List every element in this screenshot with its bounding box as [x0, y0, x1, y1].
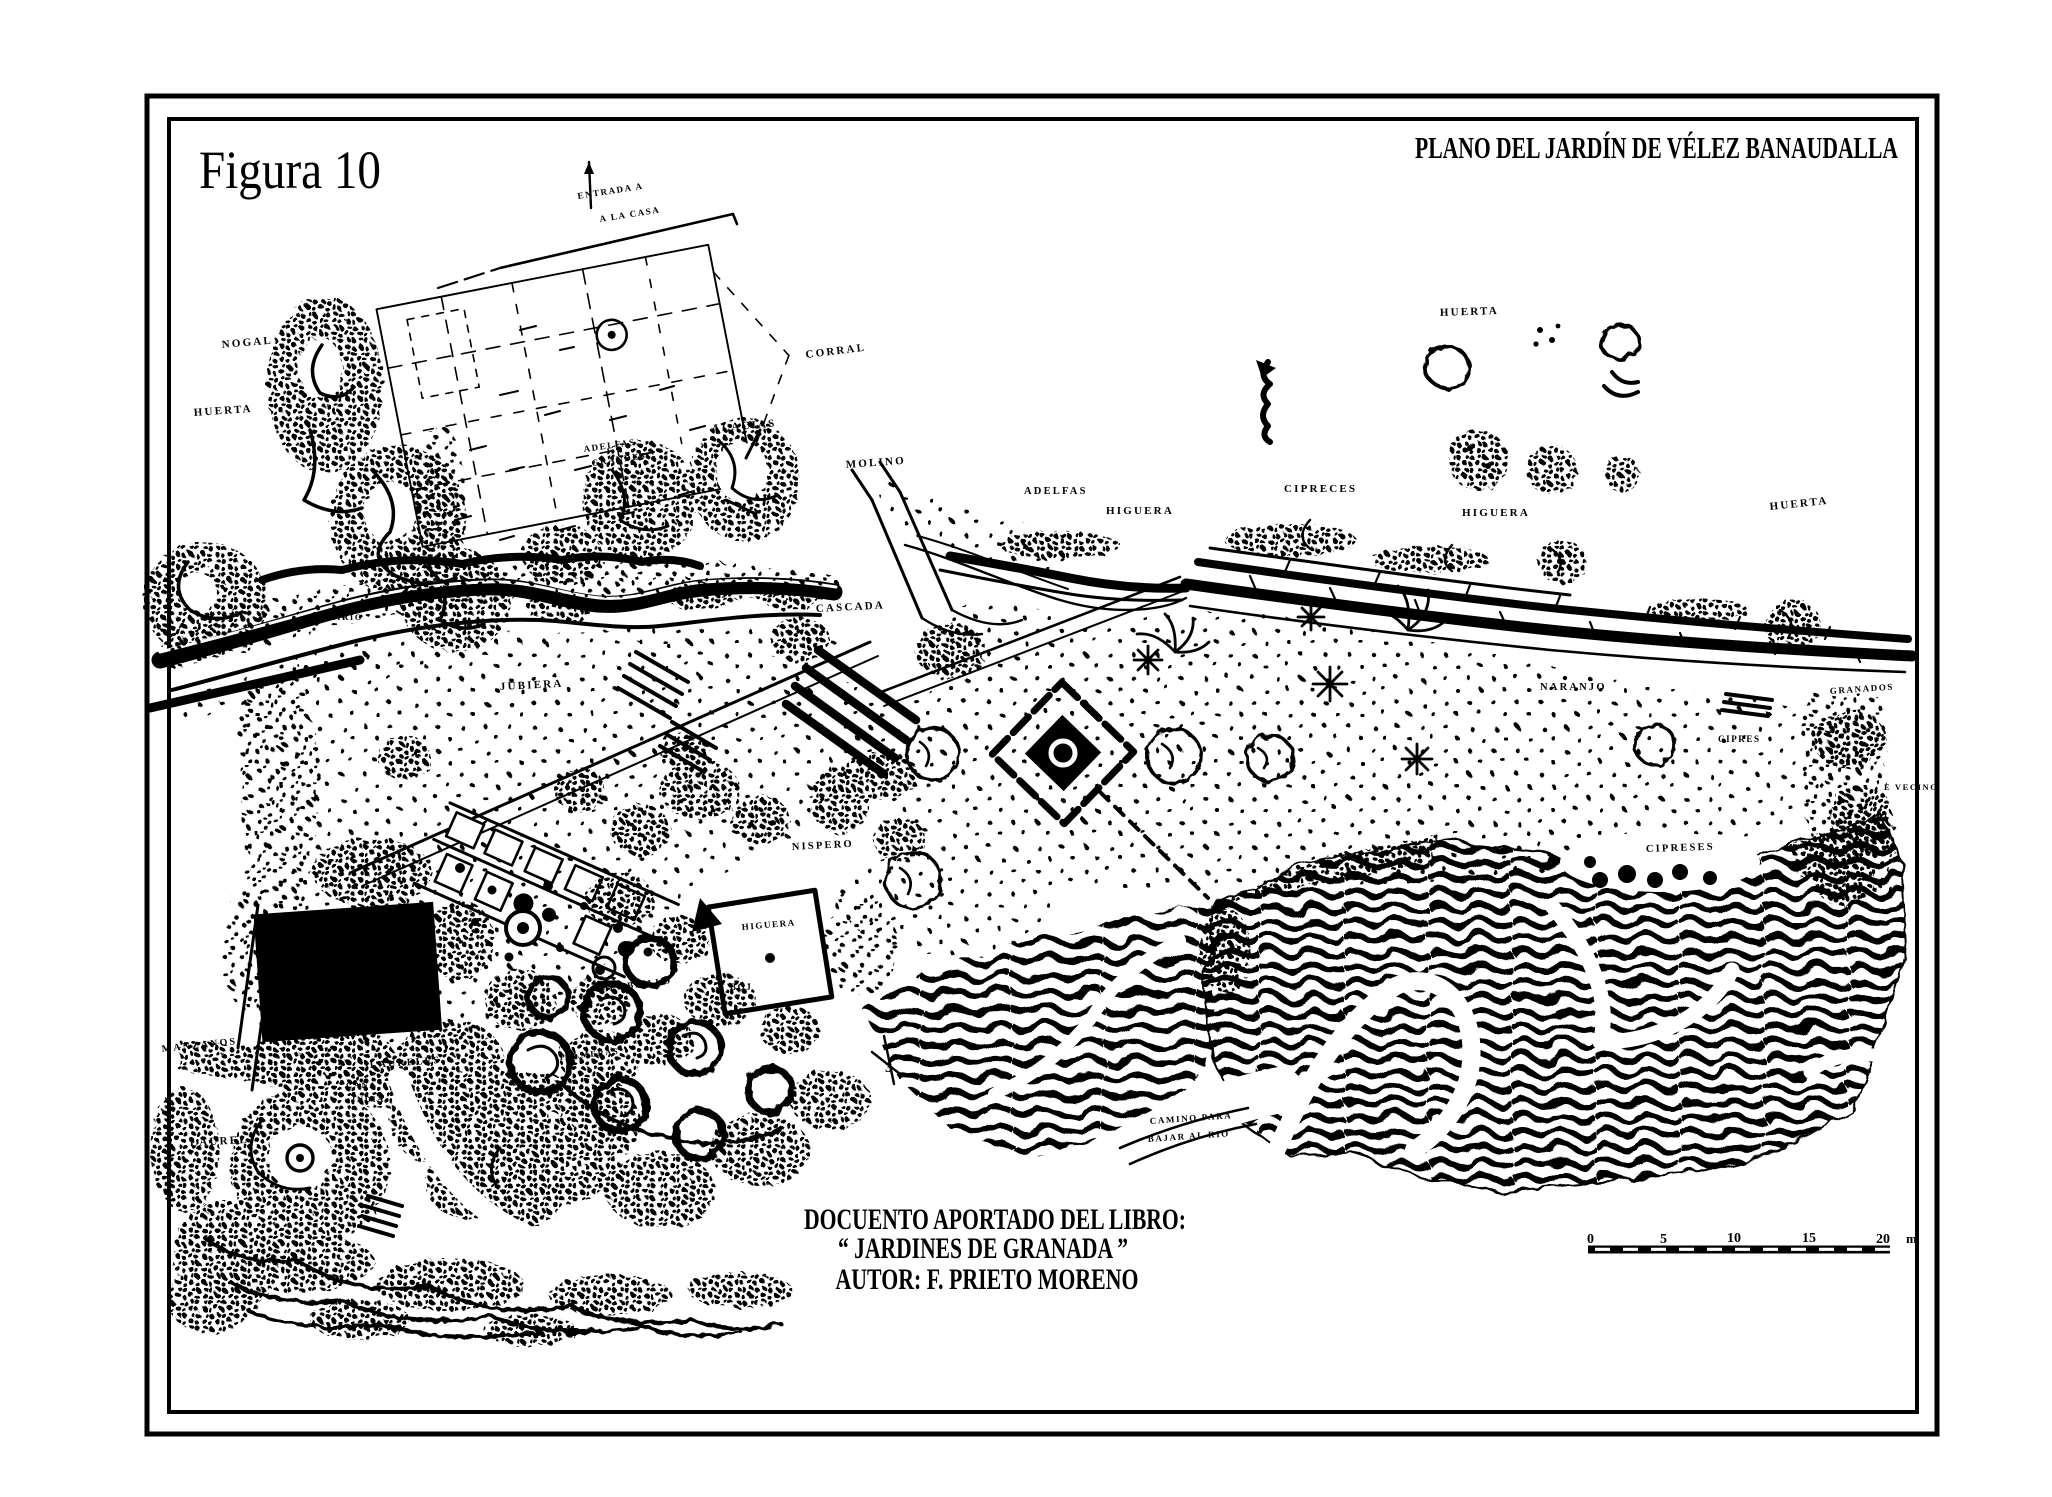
svg-text:HIGUERA: HIGUERA — [1462, 507, 1530, 519]
svg-text:20: 20 — [1876, 1232, 1890, 1247]
svg-text:CIPRECES: CIPRECES — [1284, 483, 1357, 495]
svg-text:LIRIO: LIRIO — [330, 612, 363, 622]
svg-text:3: 3 — [885, 1060, 893, 1076]
svg-text:E VECINO: E VECINO — [1884, 782, 1938, 792]
svg-text:CAÑA: CAÑA — [346, 1080, 377, 1090]
svg-text:Figura 10: Figura 10 — [199, 140, 381, 200]
svg-text:INDIA: INDIA — [352, 1094, 385, 1104]
svg-text:5: 5 — [1660, 1232, 1667, 1247]
svg-text:HIGUERA: HIGUERA — [1106, 505, 1174, 517]
svg-text:NARANJO: NARANJO — [1540, 682, 1607, 693]
svg-text:“ JARDINES DE GRANADA ”: “ JARDINES DE GRANADA ” — [838, 1232, 1128, 1265]
svg-text:0: 0 — [1587, 1232, 1594, 1247]
svg-text:m: m — [1906, 1231, 1917, 1246]
svg-text:BOJ: BOJ — [730, 982, 752, 992]
svg-text:AUTOR: F. PRIETO MORENO: AUTOR: F. PRIETO MORENO — [836, 1263, 1139, 1296]
svg-text:PLANO DEL JARDÍN DE VÉLEZ BANA: PLANO DEL JARDÍN DE VÉLEZ BANAUDALLA — [1415, 130, 1898, 165]
svg-text:15: 15 — [1802, 1231, 1816, 1246]
svg-text:ADELFAS: ADELFAS — [1024, 486, 1088, 497]
svg-text:10: 10 — [1727, 1231, 1741, 1246]
svg-text:CIPRES: CIPRES — [1718, 734, 1761, 744]
svg-text:HUERTA: HUERTA — [1440, 305, 1499, 319]
